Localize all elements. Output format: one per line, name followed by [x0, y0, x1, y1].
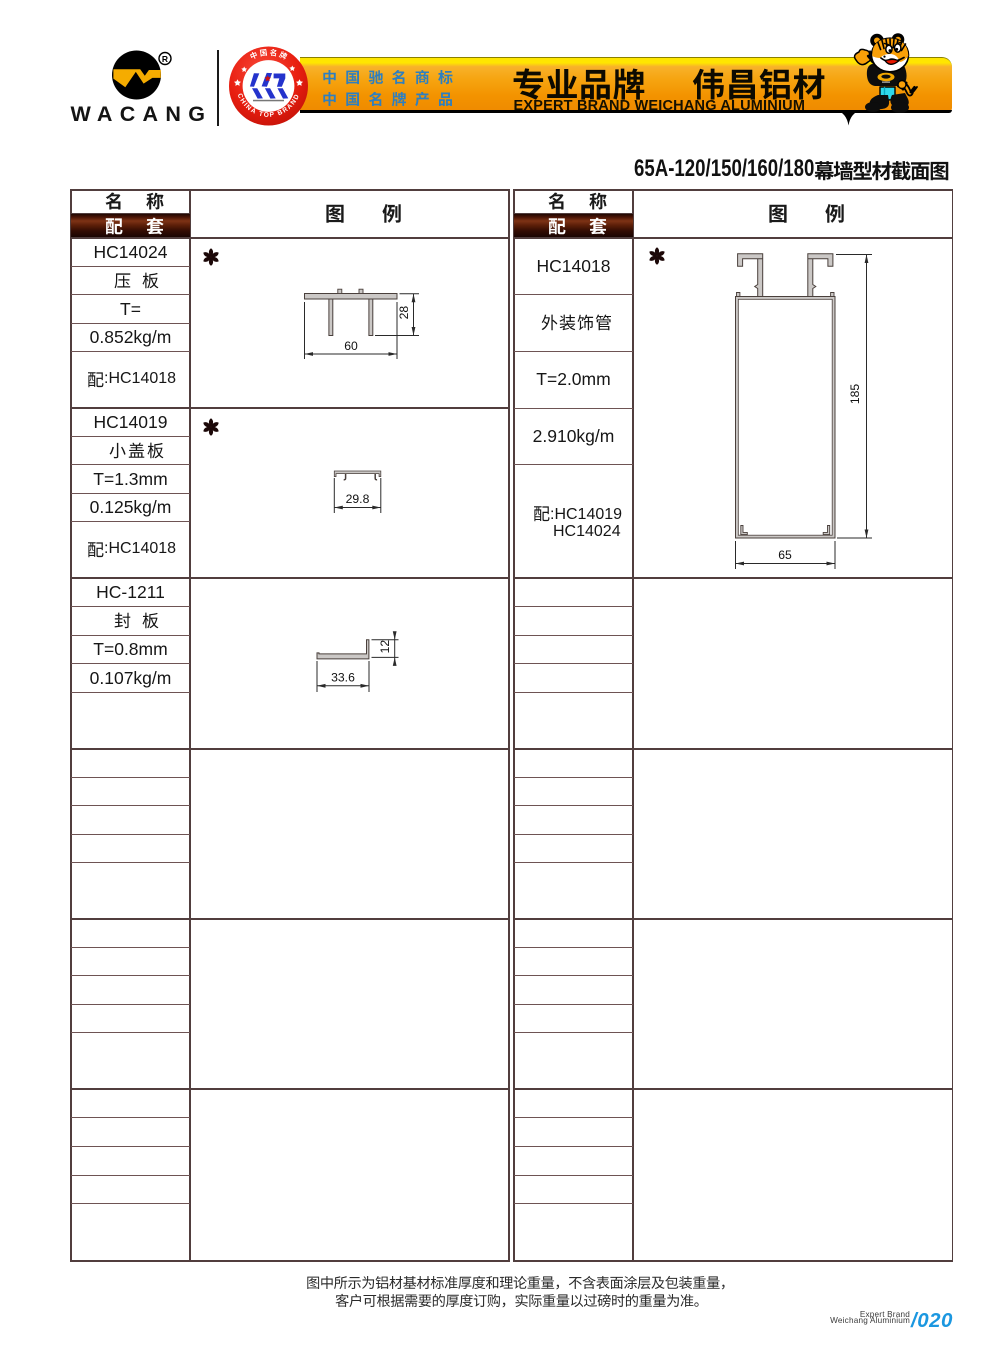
svg-text:33.6: 33.6 — [331, 670, 355, 684]
svg-text:29.8: 29.8 — [346, 492, 370, 506]
svg-text:185: 185 — [848, 384, 862, 405]
svg-text:28: 28 — [397, 306, 411, 320]
svg-text:12: 12 — [378, 640, 392, 654]
svg-text:65: 65 — [778, 548, 792, 562]
svg-text:R: R — [162, 54, 168, 64]
svg-text:60: 60 — [344, 339, 358, 353]
